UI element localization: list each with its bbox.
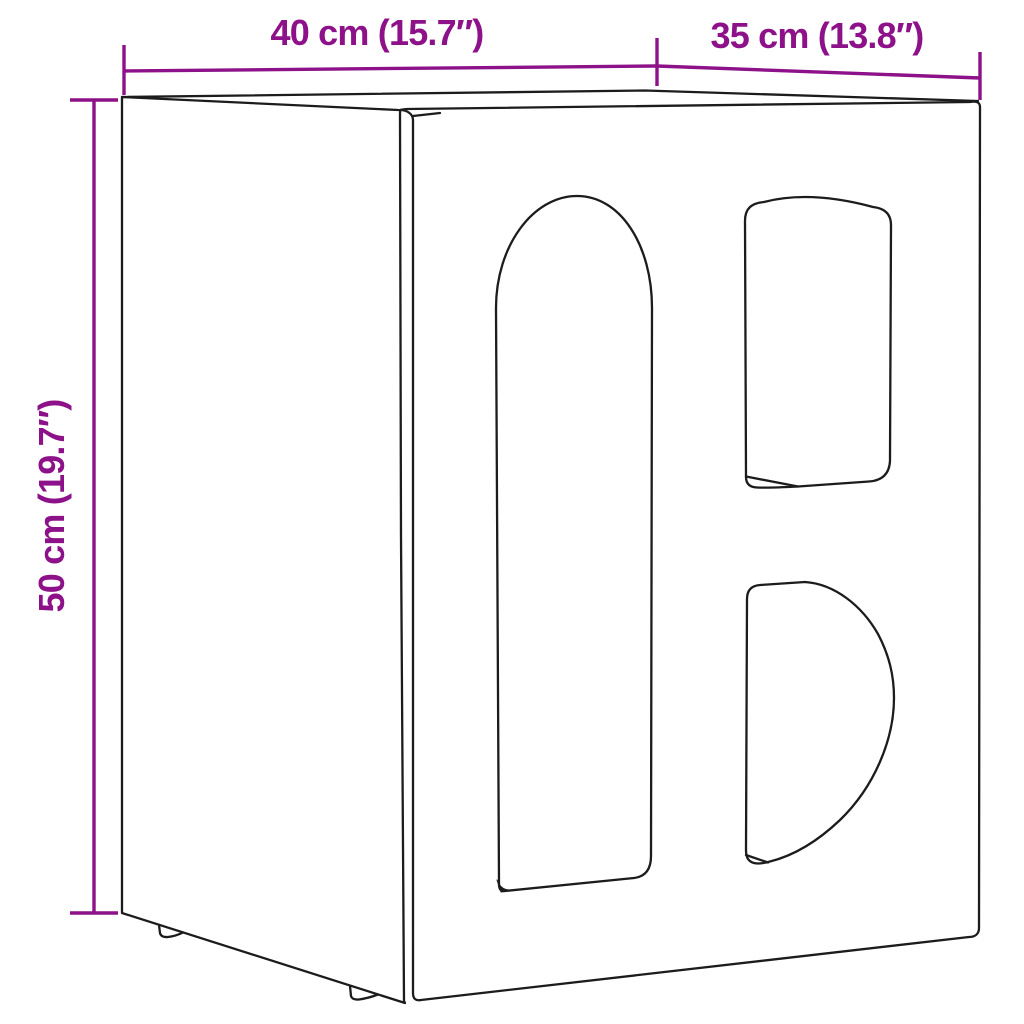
- svg-text:40 cm (15.7″): 40 cm (15.7″): [271, 12, 484, 53]
- svg-text:35 cm (13.8″): 35 cm (13.8″): [711, 15, 924, 56]
- svg-text:50 cm (19.7″): 50 cm (19.7″): [31, 400, 72, 613]
